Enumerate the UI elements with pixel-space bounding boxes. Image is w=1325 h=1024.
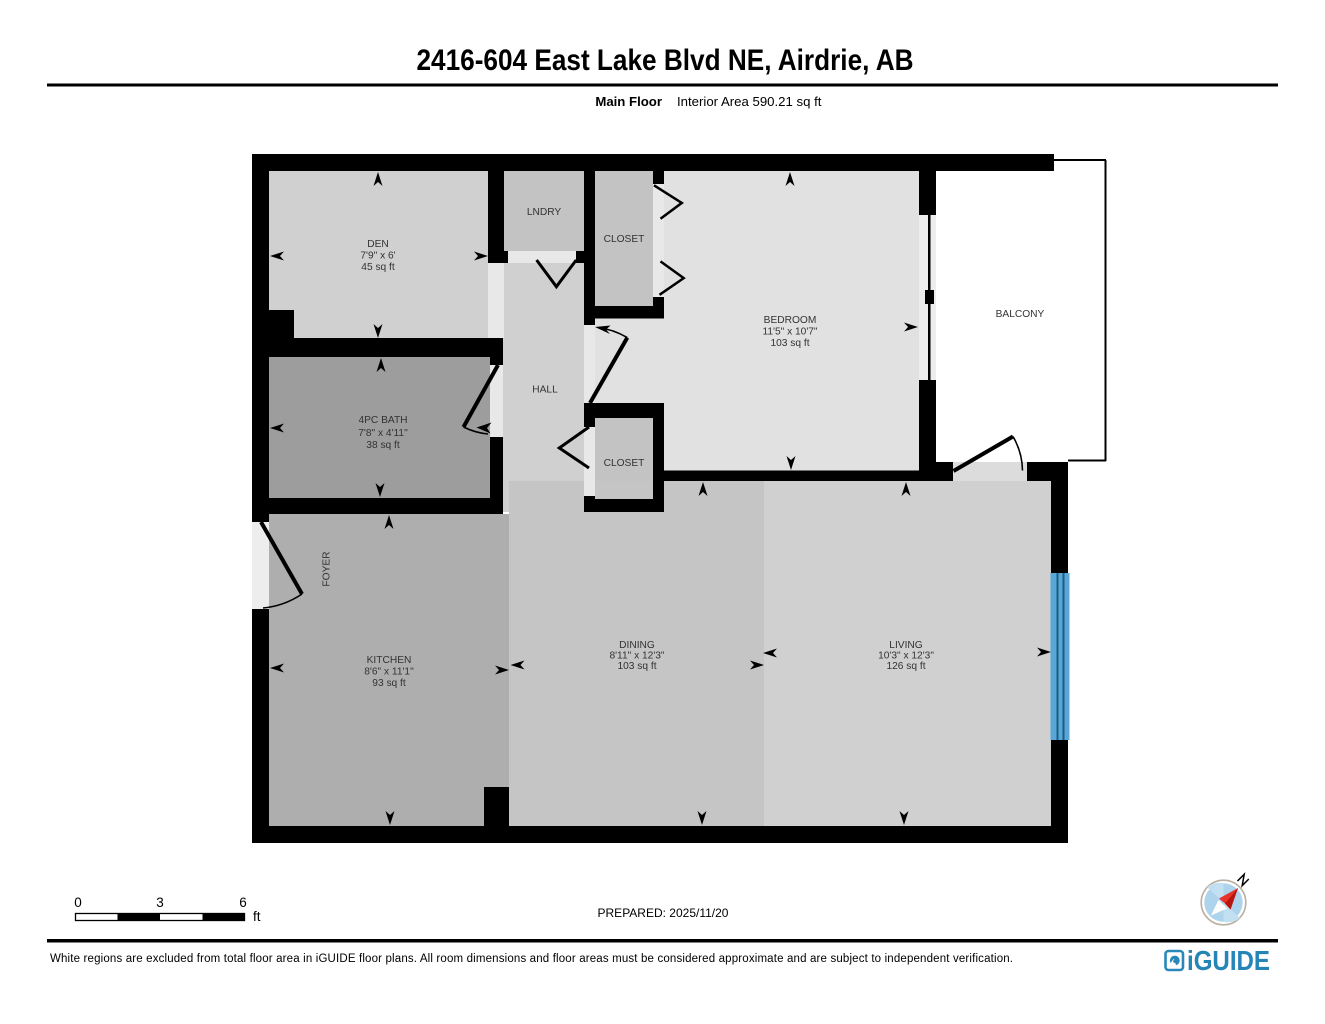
svg-text:BALCONY: BALCONY bbox=[996, 309, 1045, 320]
svg-text:iGUIDE: iGUIDE bbox=[1187, 945, 1270, 976]
svg-text:BEDROOM: BEDROOM bbox=[764, 315, 817, 326]
svg-text:103 sq ft: 103 sq ft bbox=[770, 338, 809, 349]
svg-text:0: 0 bbox=[74, 895, 82, 910]
svg-text:Interior Area 590.21 sq ft: Interior Area 590.21 sq ft bbox=[677, 94, 822, 109]
svg-text:White regions are excluded fro: White regions are excluded from total fl… bbox=[50, 953, 1013, 965]
svg-text:7'8" x 4'11": 7'8" x 4'11" bbox=[358, 428, 408, 439]
svg-text:DINING: DINING bbox=[619, 640, 655, 651]
svg-text:CLOSET: CLOSET bbox=[604, 234, 645, 245]
svg-text:126 sq ft: 126 sq ft bbox=[886, 661, 925, 672]
svg-text:38 sq ft: 38 sq ft bbox=[366, 440, 400, 451]
svg-text:CLOSET: CLOSET bbox=[604, 458, 645, 469]
svg-text:4PC BATH: 4PC BATH bbox=[358, 415, 407, 426]
svg-text:LIVING: LIVING bbox=[889, 640, 922, 651]
svg-text:103 sq ft: 103 sq ft bbox=[617, 661, 656, 672]
svg-text:8'6" x 11'1": 8'6" x 11'1" bbox=[364, 667, 414, 678]
svg-text:DEN: DEN bbox=[367, 239, 389, 250]
svg-text:8'11" x 12'3": 8'11" x 12'3" bbox=[609, 651, 664, 662]
svg-text:7'9" x 6': 7'9" x 6' bbox=[360, 251, 395, 262]
svg-text:FOYER: FOYER bbox=[322, 551, 333, 586]
svg-text:6: 6 bbox=[239, 895, 247, 910]
svg-text:HALL: HALL bbox=[532, 385, 558, 396]
svg-text:93 sq ft: 93 sq ft bbox=[372, 678, 406, 689]
svg-text:LNDRY: LNDRY bbox=[527, 207, 562, 218]
svg-text:10'3" x 12'3": 10'3" x 12'3" bbox=[878, 651, 934, 662]
svg-text:KITCHEN: KITCHEN bbox=[367, 655, 412, 666]
svg-text:Main Floor: Main Floor bbox=[595, 94, 662, 109]
svg-text:ft: ft bbox=[253, 909, 261, 924]
svg-text:11'5" x 10'7": 11'5" x 10'7" bbox=[762, 327, 817, 338]
svg-text:45 sq ft: 45 sq ft bbox=[361, 262, 395, 273]
svg-text:PREPARED: 2025/11/20: PREPARED: 2025/11/20 bbox=[598, 906, 729, 920]
svg-text:2416-604 East Lake Blvd NE, Ai: 2416-604 East Lake Blvd NE, Airdrie, AB bbox=[417, 44, 914, 77]
svg-text:3: 3 bbox=[156, 895, 164, 910]
